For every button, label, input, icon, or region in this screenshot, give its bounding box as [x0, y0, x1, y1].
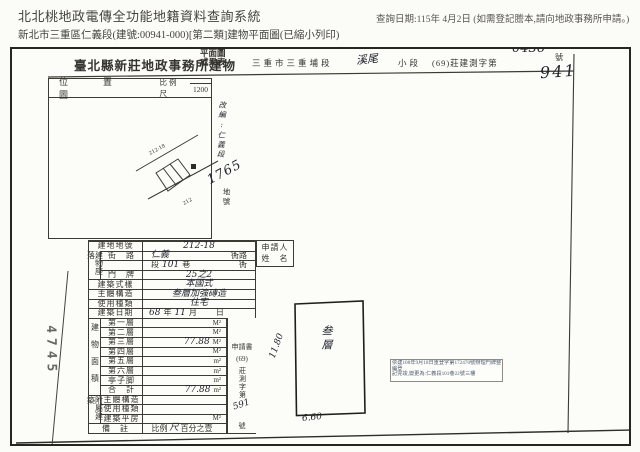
application-label: 申請書 — [232, 344, 253, 351]
doc-type-stack: 平面圖 成果表 — [200, 49, 226, 67]
plan-width-dimension: 6.60 — [302, 412, 323, 424]
application-no-suffix: 號 — [239, 423, 246, 430]
floor-unit: m² — [213, 377, 221, 384]
application-year: (69) — [236, 356, 248, 363]
application-no-handwritten: 591 — [232, 399, 251, 413]
situs-group-label: 建物座落 — [89, 251, 100, 279]
floor-unit: M² — [213, 320, 221, 327]
building-survey-table: 建物座落 建物面積 附屬建築 申請書 (69) 莊測字第 591 號 建地地號 … — [88, 240, 256, 434]
floor-label: 第五層 — [101, 357, 143, 366]
map-scale-value: 1200 — [190, 83, 211, 94]
doc-type-line2: 成果表 — [200, 58, 226, 67]
floor-unit: M² — [213, 339, 221, 346]
location-map-label: 位 置 圖 — [59, 75, 157, 101]
lot-label: 建地地號 — [89, 242, 143, 251]
table-row: 街 路 仁義 衖路 — [89, 251, 255, 261]
query-date: 查詢日期:115年 4月2日 (如需登記謄本,請向地政事務所申請。) — [376, 11, 629, 25]
survey-doc-no-label: (69)莊建測字第 — [432, 57, 498, 69]
table-row: 門 牌 25之2 — [89, 270, 255, 280]
lane-suffix: 衖 — [239, 261, 247, 269]
lane-value: 101 — [162, 261, 179, 270]
table-row: 建築日期 68 年 11 月 日 — [89, 308, 255, 318]
floor-unit: m² — [213, 387, 221, 394]
street-label: 街 路 — [101, 252, 143, 261]
date-month-unit: 月 — [189, 309, 197, 317]
subsection-handwritten: 溪尾 — [355, 50, 379, 68]
date-day-unit: 日 — [216, 309, 224, 317]
floor-label: 第六層 — [101, 367, 143, 376]
applicant-line2: 姓 名 — [262, 254, 289, 265]
annex-label: 建築平房 — [101, 415, 143, 424]
floor-label: 亭子脚 — [101, 376, 143, 385]
floor-label: 第三層 — [101, 338, 143, 347]
date-label: 建築日期 — [89, 309, 143, 318]
floor-value: 77.88 — [184, 338, 210, 347]
table-row: 使用種類 住宅 — [89, 299, 255, 309]
applicant-line1: 申請人 — [262, 243, 289, 254]
street-suffix: 衖路 — [231, 252, 247, 260]
survey-doc-no-handwritten: 0436 — [512, 47, 545, 56]
building-no-handwritten: 941 — [539, 61, 577, 83]
table-row: 主體構造 叁層加強磚造 — [89, 289, 255, 299]
annex-label: 主體構造 — [101, 396, 143, 405]
section-name: 三重市三重埔段 — [252, 57, 333, 69]
table-row: 建築式樣 本國式 — [89, 279, 255, 289]
file-number-stamp: 4745 — [43, 325, 59, 377]
table-row: 建地地號 212-18 — [89, 241, 255, 251]
system-title: 北北桃地政電傳全功能地籍資料查詢系統 — [18, 6, 261, 25]
floor-value: 77.88 — [185, 386, 211, 395]
resection-note-handwritten: 改編:仁義段 — [215, 101, 228, 160]
lot-value: 212-18 — [183, 242, 215, 251]
map-scale-label: 比例尺 — [159, 77, 185, 99]
annex-unit: M² — [213, 415, 221, 422]
plan-floor-label: 叁層 — [318, 325, 334, 353]
floor-label: 合 計 — [101, 386, 143, 395]
parcel-no-label: 地號 — [221, 188, 232, 207]
plan-height-dimension: 11.80 — [268, 332, 286, 360]
application-doc-word: 莊測字第 — [239, 367, 246, 399]
floor-label: 第二層 — [101, 328, 143, 337]
floor-label: 第四層 — [101, 348, 143, 357]
remarks-label: 備 註 — [89, 424, 143, 433]
stamp-line2: 記完竣,變更為:仁義段101巷22號三樓 — [392, 371, 503, 376]
remarks-post: 百分之壹 — [181, 425, 213, 433]
structure-label: 主體構造 — [89, 290, 143, 299]
date-year-unit: 年 — [163, 309, 171, 317]
style-label: 建築式樣 — [89, 280, 143, 289]
style-value: 本國式 — [185, 280, 212, 289]
subsection-label: 小段 — [398, 57, 421, 69]
remarks-pre: 比例 — [151, 425, 167, 433]
area-group-label: 建物面積 — [89, 319, 100, 394]
annex-label: 使用種類 — [101, 405, 143, 414]
location-map-header: 位 置 圖 比例尺 1200 — [49, 79, 211, 98]
form-right-border — [568, 54, 574, 433]
land-registry-query-page: 北北桃地政電傳全功能地籍資料查詢系統 查詢日期:115年 4月2日 (如需登記謄… — [0, 0, 640, 452]
date-month: 11 — [174, 309, 185, 318]
floor-plan-outline — [295, 301, 365, 416]
lane-pre: 段 — [151, 261, 159, 269]
floor-label: 第一層 — [101, 319, 143, 328]
applicant-name-cell: 申請人 姓 名 — [256, 240, 294, 267]
table-row: 段 101 巷 衖 — [89, 260, 255, 270]
floor-unit: m² — [213, 368, 221, 375]
address-renumber-stamp: 依建108年9月18日重登字第172470號辦理門牌整編登 記完竣,變更為:仁義… — [390, 359, 503, 382]
location-map-box: 位 置 圖 比例尺 1200 — [48, 78, 212, 239]
document-subtitle: 新北市三重區仁義段(建號:00941-000)[第二類]建物平面圖(已縮小列印) — [18, 27, 339, 42]
floor-unit: m² — [213, 358, 221, 365]
scanned-document: 212-18 212 臺北縣新莊地政事務所建物 平面圖 成果表 三重市三重埔段 … — [10, 47, 631, 446]
door-label: 門 牌 — [101, 271, 143, 280]
floor-unit: M² — [213, 348, 221, 355]
lane-mid: 巷 — [182, 261, 190, 269]
floor-unit: M² — [213, 329, 221, 336]
stamp-line1: 依建108年9月18日重登字第172470號辦理門牌整編登 — [392, 361, 503, 372]
annex-group-label: 附屬建築 — [89, 396, 100, 423]
application-no-pane: 申請書 (69) 莊測字第 591 號 — [227, 318, 256, 433]
remarks-handwritten: 尺 — [169, 424, 178, 433]
usage-label: 使用種類 — [89, 300, 143, 309]
date-year: 68 — [149, 309, 160, 318]
usage-value: 住宅 — [190, 299, 208, 308]
